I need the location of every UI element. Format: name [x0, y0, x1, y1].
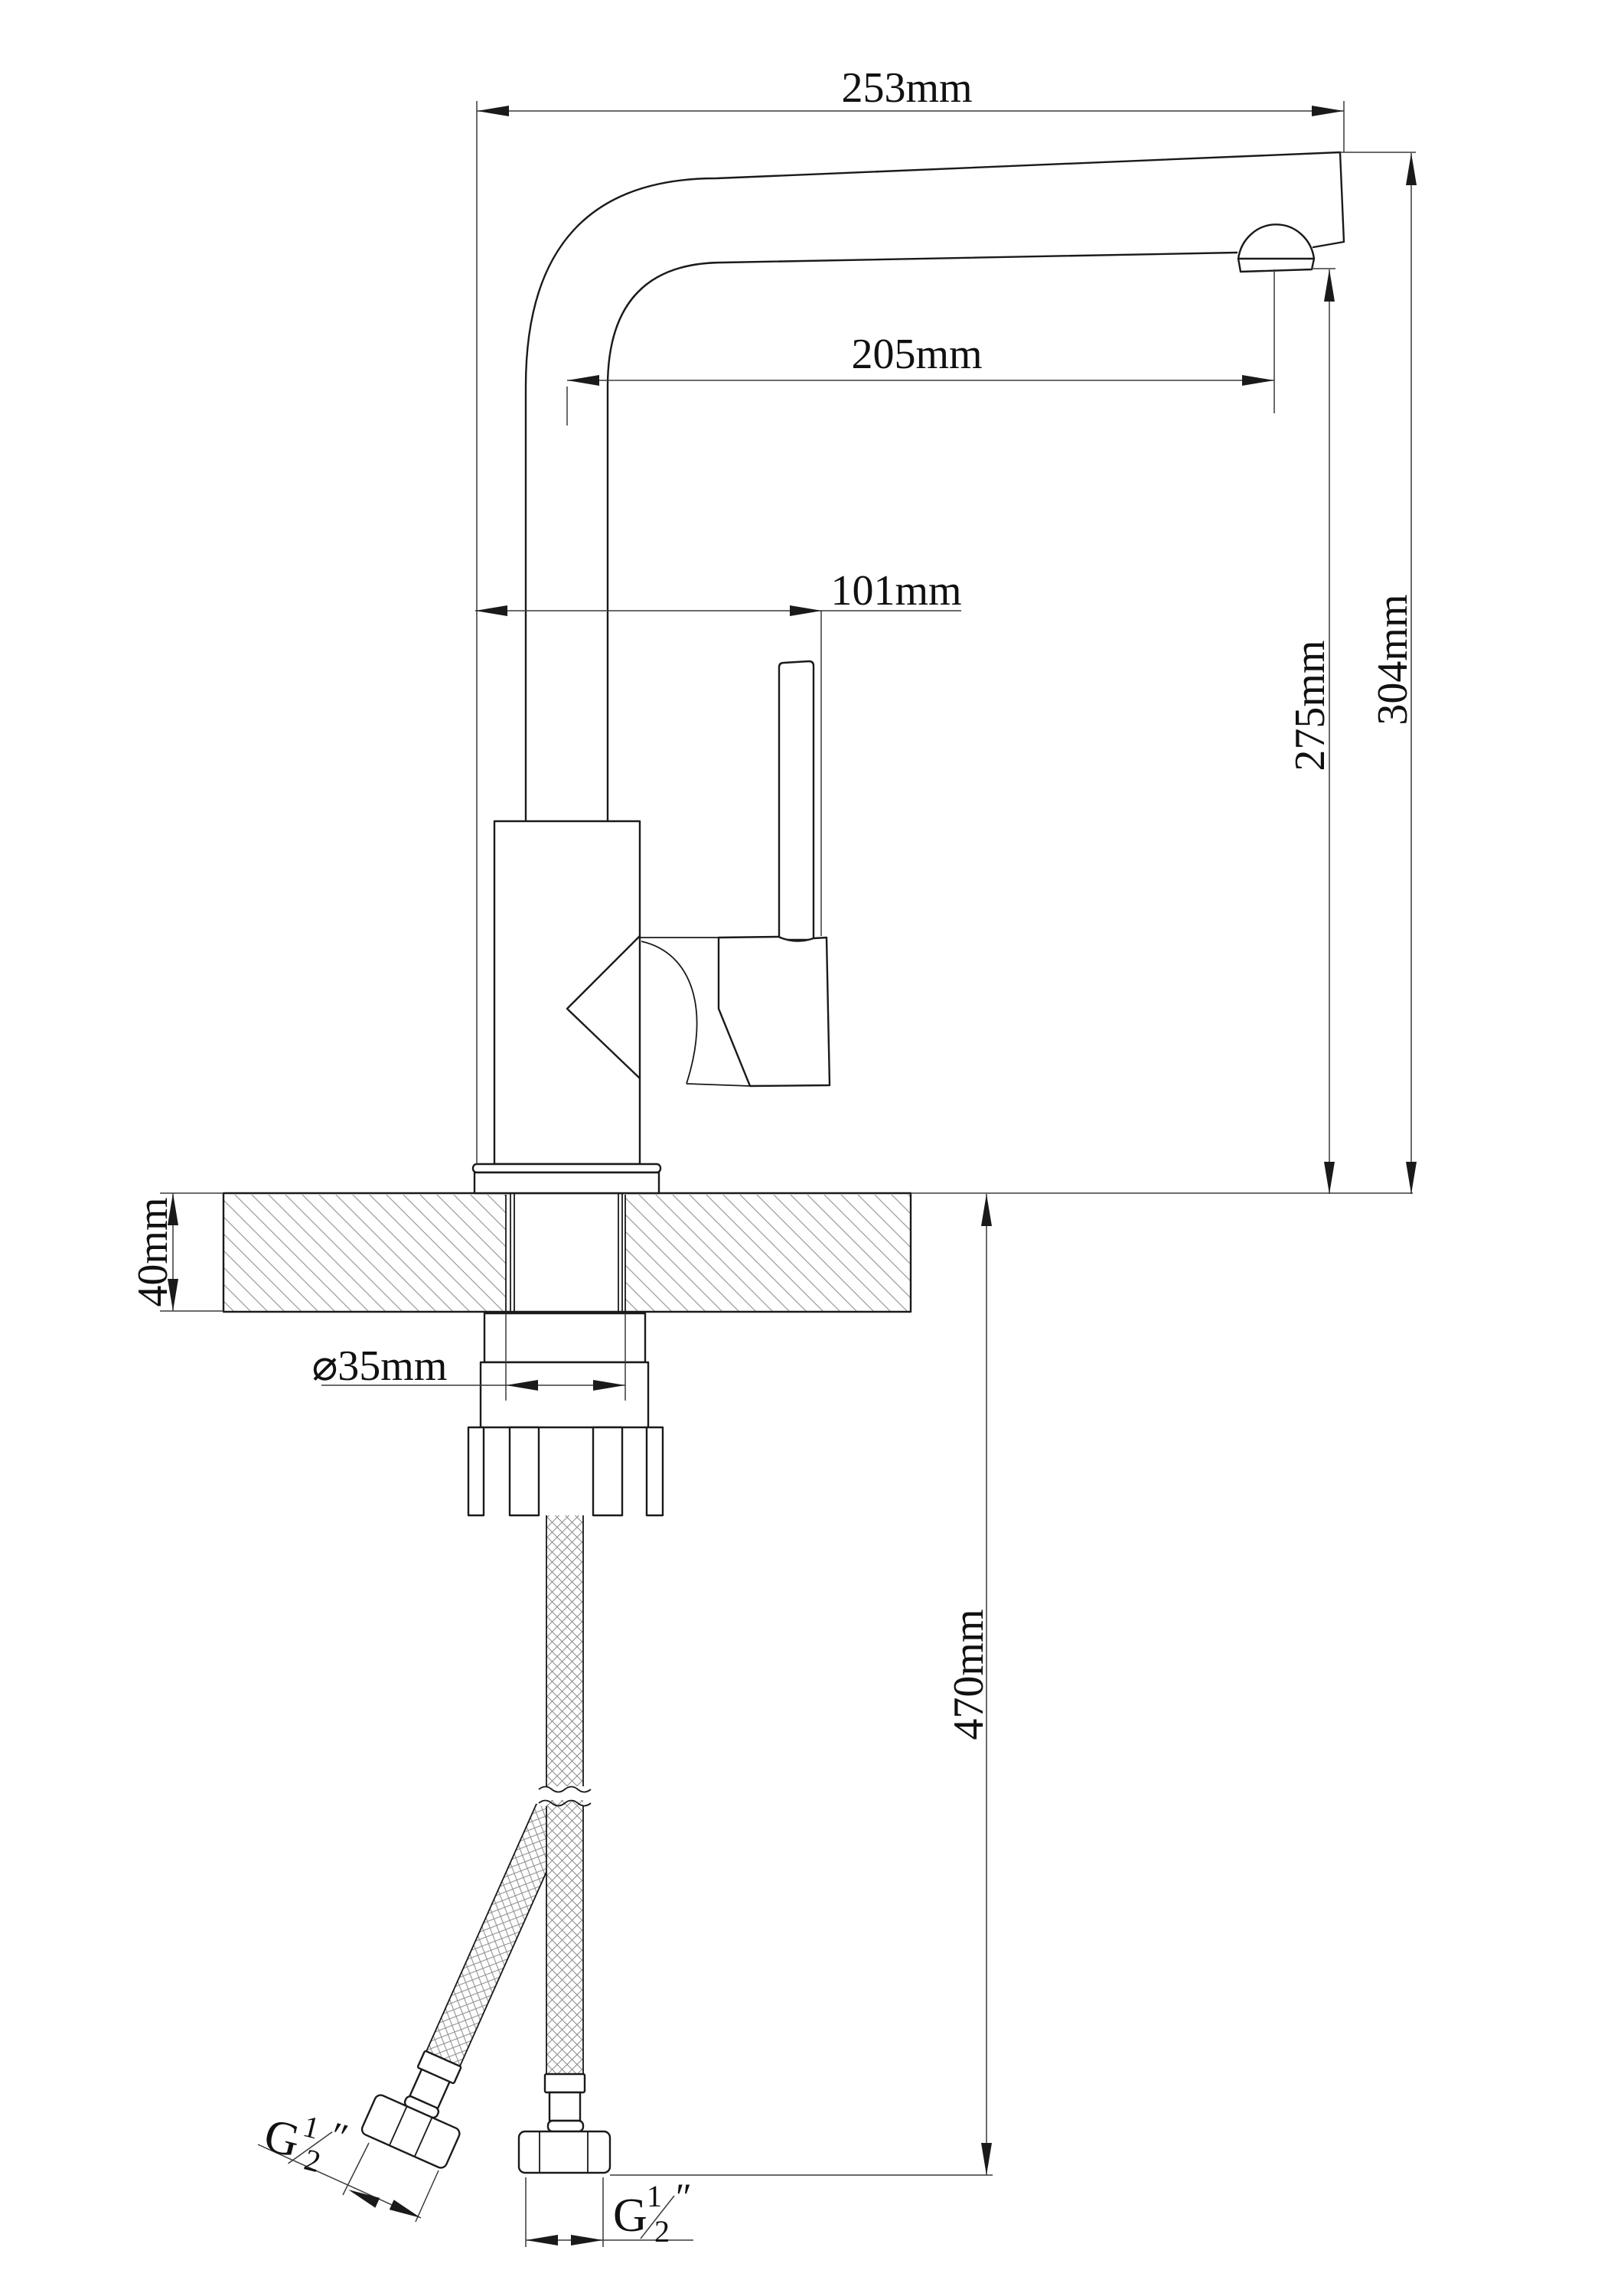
- dimension-outlet-height: 275mm: [1286, 269, 1335, 1194]
- thread-left-g: G: [259, 2109, 305, 2168]
- hose-straight-lower: [546, 1800, 583, 2074]
- thread-bottom-numerator: 1: [647, 2179, 662, 2213]
- thread-bottom-g: G: [613, 2190, 647, 2242]
- thread-left-inch-mark: ″: [327, 2113, 353, 2158]
- nut-prong: [593, 1427, 622, 1515]
- thread-bottom-denominator: 2: [654, 2214, 670, 2249]
- dim-label-40mm: 40mm: [129, 1197, 177, 1306]
- dimension-spout-reach: 205mm: [567, 269, 1274, 426]
- base-flange-block: [474, 1172, 659, 1193]
- dim-label-275mm: 275mm: [1286, 640, 1334, 771]
- mounting-nut-castellations: [468, 1427, 663, 1515]
- nut-prong: [468, 1427, 484, 1515]
- supply-hoses: [360, 1515, 610, 2173]
- dim-label-205mm: 205mm: [851, 331, 982, 378]
- nut-prong: [510, 1427, 539, 1515]
- aerator-dome: [1238, 224, 1314, 259]
- countertop: [223, 1193, 911, 1312]
- drawing-sheet: 253mm 205mm 101mm 40mm ⌀35mm 470mm 275mm: [0, 0, 1624, 2296]
- base-flange-lip: [473, 1164, 660, 1172]
- thread-label-left: G 1 2 ″: [258, 2098, 352, 2184]
- mounting-washer: [484, 1313, 645, 1362]
- thread-bottom-inch-mark: ″: [676, 2175, 692, 2218]
- hose-straight-fitting: [519, 2074, 610, 2173]
- handle-hub: [719, 937, 830, 1086]
- dim-label-470mm: 470mm: [945, 1609, 993, 1740]
- handle-lever: [779, 661, 814, 940]
- nut-prong: [647, 1427, 663, 1515]
- dim-label-35mm: ⌀35mm: [312, 1342, 448, 1390]
- counter-hatch-left: [223, 1195, 506, 1312]
- counter-hole-edges: [506, 1195, 625, 1312]
- hose-break-gap: [536, 1786, 591, 1800]
- thread-label-bottom: G 1 2 ″: [613, 2175, 692, 2249]
- dimension-counter-thickness: 40mm: [129, 1193, 223, 1311]
- hose-straight-hex-nut: [519, 2131, 610, 2173]
- hose-straight-collar: [548, 2121, 583, 2131]
- aerator-lip: [1238, 259, 1314, 272]
- threaded-shank: [510, 1193, 622, 1313]
- dimension-total-height: 304mm: [1340, 152, 1417, 1194]
- dim-label-101mm: 101mm: [830, 567, 961, 615]
- thread-left-denominator: 2: [301, 2142, 324, 2180]
- faucet-technical-drawing: 253mm 205mm 101mm 40mm ⌀35mm 470mm 275mm: [0, 0, 1624, 2296]
- dim-label-253mm: 253mm: [841, 64, 972, 112]
- hose-straight-ferrule: [545, 2074, 585, 2092]
- hose-straight-neck: [549, 2092, 580, 2121]
- dimension-hose-length: 470mm: [945, 1194, 993, 2175]
- thread-callout-bottom: G 1 2 ″: [526, 2175, 693, 2249]
- counter-hatch-right: [625, 1195, 911, 1312]
- thread-left-numerator: 1: [300, 2108, 323, 2146]
- aerator: [1238, 224, 1314, 272]
- faucet: [473, 152, 1344, 1193]
- hose-straight-upper: [546, 1515, 583, 1788]
- dim-label-304mm: 304mm: [1369, 594, 1417, 725]
- faucet-body: [494, 821, 640, 1164]
